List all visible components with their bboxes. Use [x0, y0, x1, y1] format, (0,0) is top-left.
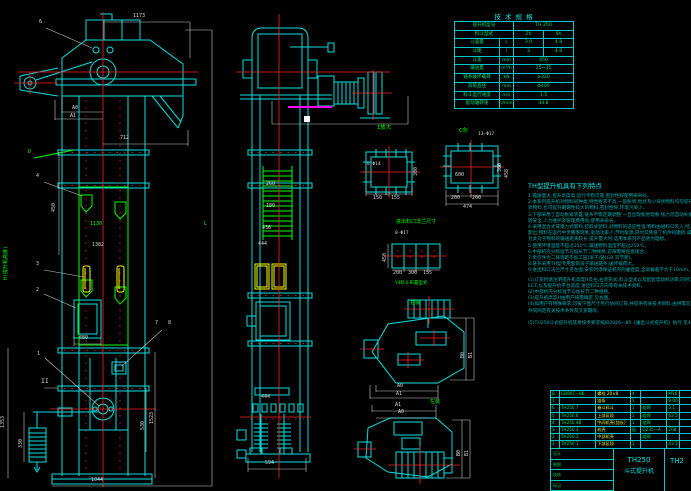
spec-cell: Φ400 — [513, 83, 573, 91]
bom-cell: 机壳 — [596, 427, 631, 433]
dim-label: 7 — [155, 321, 158, 326]
cad-viewport[interactable]: 1173712A0A16D44501130138232178II48033013… — [0, 0, 691, 491]
spec-table-title: 技 术 规 格 — [454, 11, 574, 21]
dim-label: 进出料口法兰尺寸 — [396, 220, 436, 225]
bom-row: 6TH250.7畚斗料斗1组焊3.1 — [551, 404, 691, 411]
spec-cell: 450 — [513, 57, 573, 65]
bom-cell: 3.1 — [667, 405, 679, 411]
spec-cell: 25~35 — [513, 65, 573, 73]
bom-cell: TH250.6 — [560, 413, 596, 419]
bom-cell: 1 — [631, 405, 642, 411]
dim-label: C向 — [459, 129, 468, 135]
dim-label: 300 — [408, 271, 417, 276]
bom-cell: TH250.2 — [560, 434, 596, 440]
bom-cell — [667, 420, 679, 426]
spec-table: 技 术 规 格 提升机型号TH 250料斗型式ZhSh斗容量L3.04.8斗距l… — [454, 11, 574, 109]
dim-label: 1523 — [150, 412, 155, 424]
bom-cell: 7 — [551, 398, 560, 404]
dim-label: A0 — [398, 410, 404, 415]
bom-row: 7链条19.06 — [551, 397, 691, 404]
spec-cell: 斗宽 — [455, 57, 499, 65]
dim-label: 1353 — [1, 416, 6, 428]
dim-label: B1 — [469, 352, 474, 358]
dim-label: 436 — [262, 226, 271, 231]
dim-label: Y4料斗布置型式 — [395, 282, 427, 287]
title-block-label: 校核 — [551, 470, 613, 481]
spec-cell: 3 — [513, 48, 543, 56]
dim-label: B0 — [457, 450, 462, 456]
bom-cell: 螺栓 20×8 — [596, 391, 631, 397]
dim-label: 600 — [455, 173, 464, 178]
spec-cell: 输送量 — [455, 65, 499, 73]
dim-label: 200 — [451, 196, 460, 201]
spec-cell: Zh — [513, 31, 543, 39]
dim-label: 450 — [52, 203, 57, 212]
bom-cell: 畚斗料斗 — [596, 405, 631, 411]
spec-cell: mm — [499, 83, 513, 91]
bom-cell — [641, 398, 667, 404]
spec-table-rows: 提升机型号TH 250料斗型式ZhSh斗容量L3.04.8斗距l34.8斗宽mm… — [454, 21, 574, 109]
bom-cell: 5 — [551, 413, 560, 419]
dim-label: A1 — [70, 114, 76, 119]
drawing-model: TH250 — [614, 456, 664, 464]
bom-cell: 4 — [551, 420, 560, 426]
spec-cell: l — [499, 48, 513, 56]
bom-cell — [680, 434, 691, 440]
spec-row: 斗宽mm450 — [455, 56, 573, 65]
dim-label: 300 — [414, 167, 419, 176]
spec-row: 料斗型式ZhSh — [455, 30, 573, 39]
spec-cell: kN — [499, 74, 513, 82]
dim-label: 150 — [373, 196, 382, 201]
spec-cell: Sh — [543, 31, 573, 39]
spec-cell: 提升机型号 — [455, 22, 513, 30]
bom-cell — [680, 441, 691, 447]
dim-label: 右装 — [410, 301, 420, 306]
spec-row: 斗容量L3.04.8 — [455, 38, 573, 47]
bom-cell — [680, 391, 691, 397]
title-block-label: 设计 — [551, 449, 613, 460]
spec-row: 输送量m³/h25~35 — [455, 64, 573, 73]
bom-cell: 组焊 — [641, 405, 667, 411]
bom-cell: 6 — [551, 405, 560, 411]
bom-rows: 8GB907—86螺栓 20×84M167链条19.066TH250.7畚斗料斗… — [551, 391, 691, 449]
bom-cell: 1 — [631, 413, 642, 419]
dim-label: 4 — [36, 174, 39, 179]
dim-label: 300 — [498, 163, 503, 172]
dim-label: 444 — [258, 242, 267, 247]
title-block-signature-grid: 设计制图校核标记 — [551, 449, 614, 491]
spec-cell: 4.8 — [543, 39, 573, 47]
detail-views — [354, 140, 504, 484]
dim-label: 13-Φ17 — [478, 133, 494, 138]
dim-label: 3 — [36, 262, 39, 267]
title-block-label: 制图 — [551, 460, 613, 471]
dim-label: H(提升机高度) — [4, 246, 9, 280]
bom-cell — [680, 413, 691, 419]
bom-cell — [641, 391, 667, 397]
dim-label: 330 — [19, 439, 24, 448]
front-view — [8, 12, 212, 487]
dim-label: 8 — [168, 321, 171, 326]
spec-cell: m³/h — [499, 65, 513, 73]
dim-label: 8-Φ14 — [367, 163, 381, 168]
bom-cell — [641, 441, 667, 447]
bom-cell — [667, 434, 679, 440]
note-line: 9.进出料口法兰尺寸见左图,安装时须保证机壳的垂直度,全高偏差不大于10mm。 — [528, 268, 691, 274]
dim-label: 1173 — [133, 14, 145, 19]
bom-cell: 链条 — [596, 398, 631, 404]
dim-label: A1 — [396, 392, 402, 397]
dim-label: 444 — [261, 395, 270, 400]
bom-cell: 1 — [631, 398, 642, 404]
dim-label: 594 — [265, 461, 274, 466]
dim-label: 155 — [391, 196, 400, 201]
spec-cell: 3.0 — [513, 39, 543, 47]
bom-cell: TH250.3 — [560, 427, 596, 433]
bom-row: 1TH250.1下部区段143.2 — [551, 440, 691, 447]
bom-cell — [631, 434, 642, 440]
dim-label: 530 — [141, 421, 146, 430]
spec-row: 提升机型号TH 250 — [455, 22, 573, 30]
dim-label: 474 — [463, 205, 472, 210]
bom-cell: 63.5 — [667, 413, 679, 419]
note-line: (1)订货时请注明提升机高度H及左,右装形式,料斗型式以及配套电动机功率,同时注… — [528, 278, 691, 284]
dim-label: 1 — [37, 352, 40, 357]
bom-cell: 组焊 — [641, 420, 667, 426]
spec-row: 料斗运行速度m/s1.5 — [455, 91, 573, 100]
bom-cell — [680, 420, 691, 426]
bom-cell — [680, 427, 691, 433]
bom-cell: 组焊 — [641, 413, 667, 419]
bom-cell: 1 — [631, 420, 642, 426]
title-block: 设计制图校核标记 TH250 斗式提升机 TH2 — [550, 448, 691, 491]
dim-label: A0 — [397, 384, 403, 389]
dim-label: 450 — [383, 253, 388, 262]
bom-cell: 2 — [551, 434, 560, 440]
spec-cell: 料斗运行速度 — [455, 92, 499, 100]
bom-cell: 组焊 — [641, 434, 667, 440]
bom-row: 4TH250.4B中间机壳(加长)1组焊 — [551, 419, 691, 426]
spec-cell: r/min — [499, 100, 513, 108]
bom-cell: 下部区段 — [596, 441, 631, 447]
note-line: (5)TH250斗式提升机其余技术要求按JB3926—85《垂直斗式提升机》执行… — [528, 321, 691, 327]
note-line: (4)如用户有特殊要求,可按下图尺寸另行协商订货,并提供有关技术资料,由供需双方… — [528, 302, 691, 308]
bom-cell: GB907—86 — [560, 391, 596, 397]
dim-label: 458 — [505, 169, 510, 178]
spec-cell: m/s — [499, 92, 513, 100]
bom-cell: Q235—A — [641, 427, 667, 433]
dim-label: A1 — [395, 403, 401, 408]
bom-cell: 上部区段 — [596, 413, 631, 419]
dim-label: 1130 — [90, 222, 102, 227]
bom-cell — [680, 405, 691, 411]
bom-cell: TH250.1 — [560, 441, 596, 447]
spec-cell: 斗容量 — [455, 39, 499, 47]
dim-label: 260 — [266, 182, 275, 187]
spec-cell: ≥320 — [513, 74, 573, 82]
bom-table: 8GB907—86螺栓 20×84M167链条19.066TH250.7畚斗料斗… — [550, 390, 691, 449]
note-line: 为此对于物料的输送距离较长,提升量大时,选用本系列产品更为理想。 — [528, 237, 691, 243]
bom-cell: TH250.7 — [560, 405, 596, 411]
bom-cell: 中间机壳(加长) — [596, 420, 631, 426]
dim-label: 200 — [472, 196, 481, 201]
spec-cell: mm — [499, 57, 513, 65]
spec-row: 斗距l34.8 — [455, 47, 573, 56]
spec-cell: 斗距 — [455, 48, 499, 56]
bom-row: 8GB907—86螺栓 20×84M16 — [551, 391, 691, 397]
dim-label: 左装 — [430, 400, 440, 405]
bom-row: 5TH250.6上部区段1组焊63.5 — [551, 412, 691, 419]
spec-row: 滚筒直径mmΦ400 — [455, 82, 573, 91]
dim-label: 1382 — [92, 243, 104, 248]
dim-label: 712 — [120, 136, 129, 141]
spec-row: 链条破坏载荷kN≥320 — [455, 73, 573, 82]
bom-cell: TH250.4B — [560, 420, 596, 426]
dim-label: B0 — [461, 352, 466, 358]
dim-label: L — [204, 222, 207, 227]
dim-label: 2 — [36, 288, 39, 293]
bom-cell: 9.06 — [667, 398, 679, 404]
bom-cell — [680, 398, 691, 404]
title-block-label: 标记 — [551, 481, 613, 491]
dim-label: 200 — [393, 271, 402, 276]
dim-label: I放大 — [377, 126, 391, 132]
spec-cell: 44.8 — [513, 100, 573, 108]
bom-cell — [560, 398, 596, 404]
dim-label: B1 — [465, 450, 470, 456]
dim-label: 155 — [423, 271, 432, 276]
bom-row: 3TH250.3机壳段Q235—A208 — [551, 426, 691, 433]
dim-label: 6 — [39, 20, 42, 25]
spec-cell: TH 250 — [513, 22, 573, 30]
bom-cell: 1 — [631, 441, 642, 447]
dim-label: A0 — [72, 106, 78, 111]
bom-cell: 43.2 — [667, 441, 679, 447]
bom-cell: 段 — [631, 427, 642, 433]
dim-label: 8-Φ17 — [395, 232, 409, 237]
bom-cell: 4 — [631, 391, 642, 397]
dim-label: 180 — [266, 204, 275, 209]
bom-cell: 8 — [551, 391, 560, 397]
bom-cell: 3 — [551, 427, 560, 433]
dim-label: 480 — [79, 336, 88, 341]
bom-cell: 1 — [551, 441, 560, 447]
spec-row: 驱动轴转速r/min44.8 — [455, 99, 573, 108]
notes-block: TH型提升机具有下列特点 1.输送量大,提升高度高,运行平稳可靠,密封性好使用寿… — [528, 180, 691, 392]
dim-label: II — [41, 378, 49, 385]
spec-cell: 链条破坏载荷 — [455, 74, 499, 82]
bom-cell: 中部机壳 — [596, 434, 631, 440]
notes-title: TH型提升机具有下列特点 — [528, 180, 691, 190]
dim-label: 1044 — [91, 478, 103, 483]
spec-cell: 1.5 — [513, 92, 573, 100]
title-block-center: TH250 斗式提升机 — [614, 449, 665, 491]
bom-cell: M16 — [667, 391, 679, 397]
spec-cell: 4.8 — [543, 48, 573, 56]
bom-row: 2TH250.2中部机壳组焊 — [551, 433, 691, 440]
title-block-right: TH2 — [665, 449, 691, 491]
spec-cell: 滚筒直径 — [455, 83, 499, 91]
bom-cell: 208 — [667, 427, 679, 433]
dim-label: D — [28, 150, 31, 155]
note-line: 3.下部采用了自动张紧装置,链条不需定期调整,一旦出现松弛现象,张力可自动补偿,… — [528, 213, 691, 219]
spec-cell: L — [499, 39, 513, 47]
spec-cell: 料斗型式 — [455, 31, 513, 39]
drawing-code: TH2 — [665, 449, 691, 465]
spec-cell: 驱动轴转速 — [455, 100, 499, 108]
notes-lines: 1.输送量大,提升高度高,运行平稳可靠,密封性好使用寿命长。2.本系列提升机对物… — [528, 194, 691, 327]
drawing-name: 斗式提升机 — [614, 466, 664, 475]
